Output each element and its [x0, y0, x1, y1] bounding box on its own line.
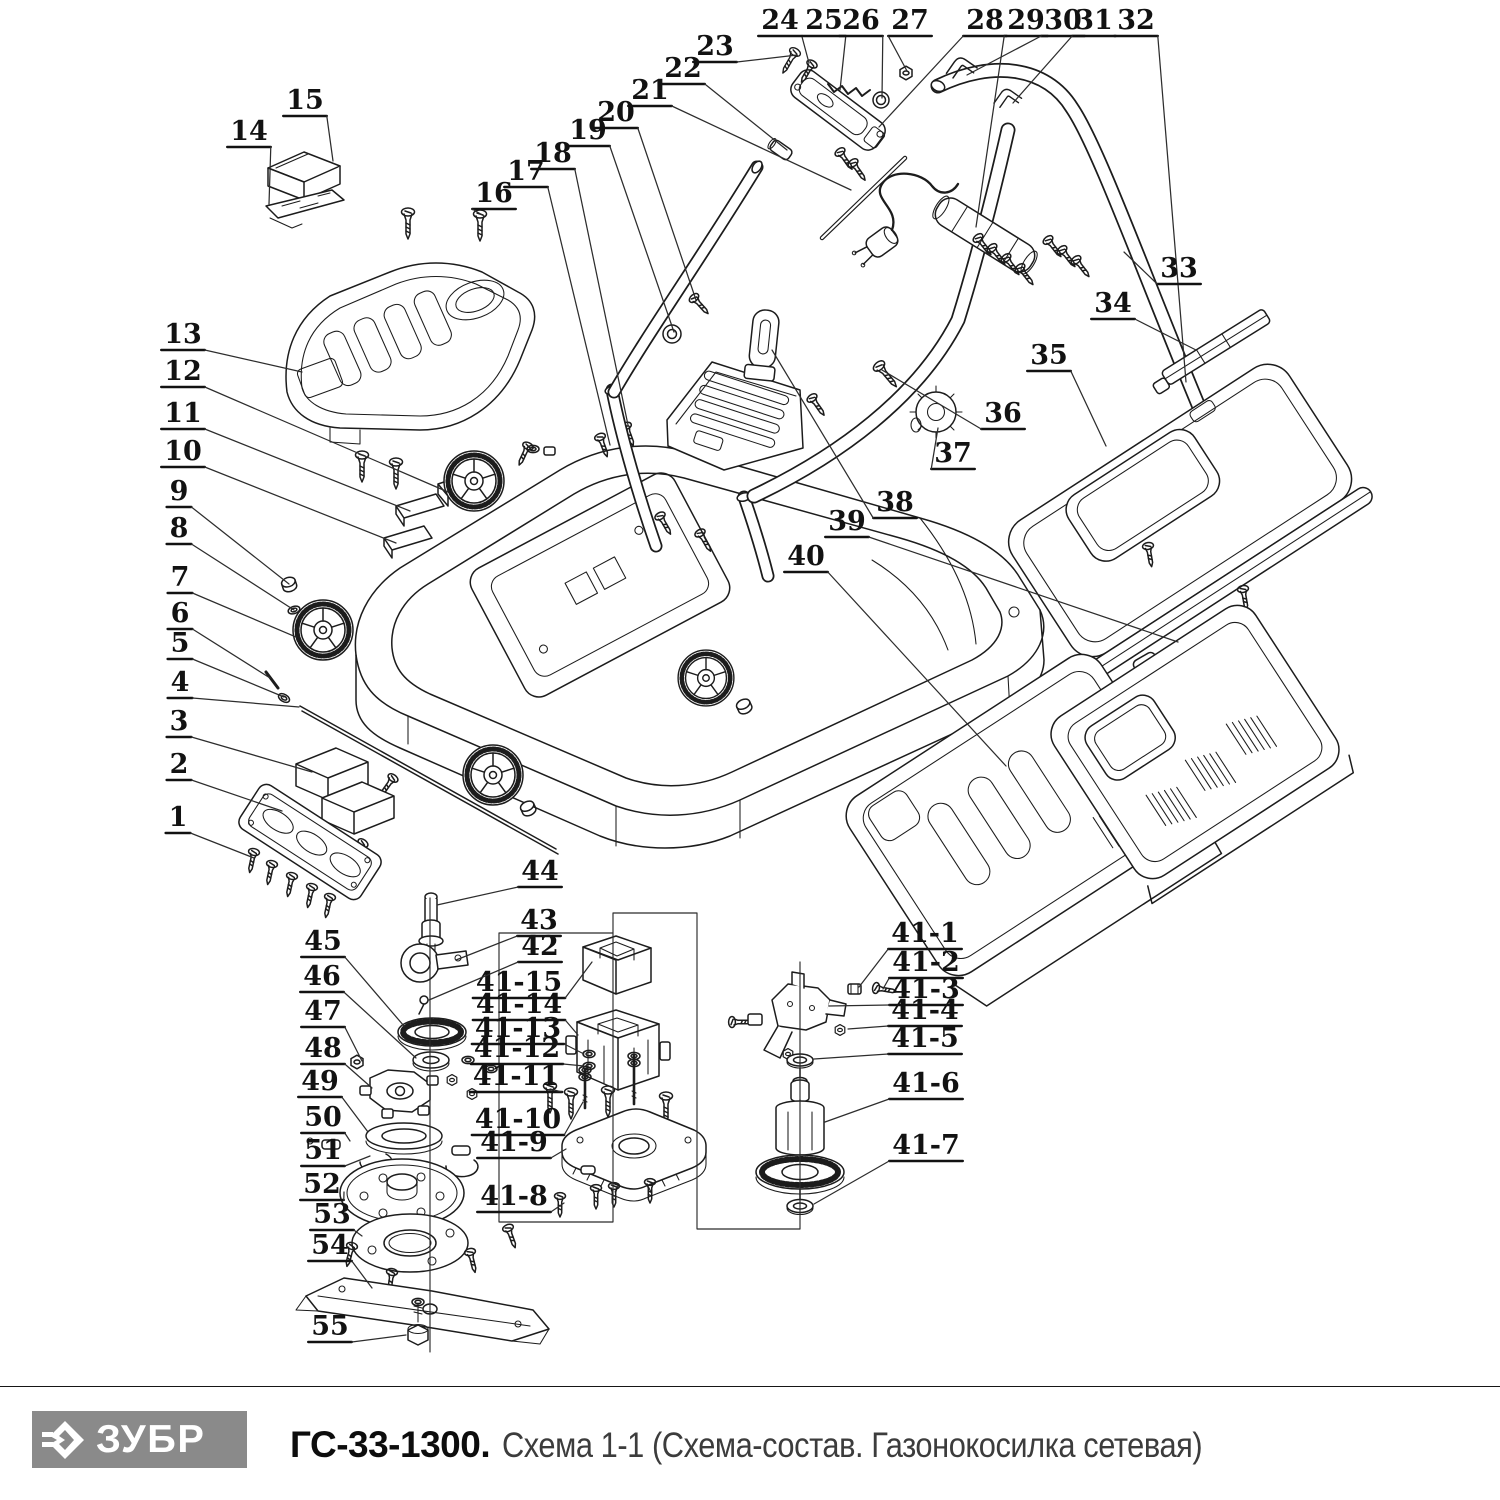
- part-label-41-10: 41-10: [475, 1104, 561, 1135]
- motor-rotor-parts: [729, 972, 898, 1215]
- leader-line-11: [205, 429, 410, 511]
- leader-line-8: [191, 544, 294, 610]
- part-label-49: 49: [301, 1066, 339, 1097]
- part-label-55: 55: [311, 1311, 349, 1342]
- schema-subtitle: Схема 1-1 (Схема-состав. Газонокосилка с…: [502, 1426, 1202, 1466]
- part-label-8: 8: [170, 513, 189, 544]
- part-label-37: 37: [934, 438, 972, 469]
- part-label-44: 44: [521, 856, 559, 887]
- part-label-13: 13: [164, 319, 202, 350]
- part-label-26: 26: [842, 5, 880, 36]
- part-label-50: 50: [304, 1102, 342, 1133]
- part-label-27: 27: [891, 5, 929, 36]
- part-label-45: 45: [304, 926, 342, 957]
- part-label-29: 29: [1007, 5, 1045, 36]
- part-label-25: 25: [805, 5, 843, 36]
- leader-line-3: [191, 737, 312, 772]
- part-label-41-11: 41-11: [473, 1061, 559, 1092]
- part-label-38: 38: [876, 487, 914, 518]
- part-label-41-6: 41-6: [892, 1068, 960, 1099]
- cover-box-14-15: [266, 152, 344, 228]
- part-label-21: 21: [631, 75, 669, 106]
- part-label-2: 2: [170, 749, 189, 780]
- part-label-40: 40: [787, 541, 825, 572]
- leader-line-6: [192, 629, 270, 678]
- part-label-3: 3: [170, 706, 189, 737]
- leader-line-55: [352, 1335, 406, 1342]
- part-label-51: 51: [304, 1135, 342, 1166]
- part-label-35: 35: [1030, 340, 1068, 371]
- brand-logo: ЗУБР: [32, 1411, 247, 1468]
- leader-line-15: [327, 116, 333, 161]
- leader-line-1: [190, 833, 254, 858]
- part-label-5: 5: [171, 628, 190, 659]
- part-label-41-4: 41-4: [891, 995, 959, 1026]
- brand-logo-text: ЗУБР: [96, 1418, 205, 1462]
- part-label-34: 34: [1094, 288, 1132, 319]
- leader-line-41-14: [565, 1020, 578, 1035]
- leader-line-10: [205, 467, 396, 543]
- part-label-47: 47: [304, 996, 342, 1027]
- motor-stator-parts: [544, 936, 707, 1217]
- part-label-41-5: 41-5: [891, 1023, 959, 1054]
- leader-line-35: [1071, 371, 1106, 446]
- leader-line-19: [610, 146, 674, 332]
- part-label-31: 31: [1075, 5, 1113, 36]
- part-label-12: 12: [164, 356, 202, 387]
- leader-line-50: [345, 1133, 350, 1141]
- leader-line-7: [192, 593, 296, 637]
- part-label-18: 18: [534, 138, 572, 169]
- leader-line-18: [575, 169, 628, 425]
- part-label-10: 10: [164, 436, 202, 467]
- part-label-32: 32: [1117, 5, 1155, 36]
- part-label-41-8: 41-8: [480, 1181, 548, 1212]
- leader-line-41-6: [825, 1099, 889, 1122]
- brand-logo-icon: [42, 1417, 88, 1463]
- leader-line-41-4: [848, 1026, 888, 1029]
- part-label-11: 11: [164, 398, 202, 429]
- part-label-24: 24: [761, 5, 799, 36]
- part-label-1: 1: [169, 802, 188, 833]
- leader-line-27: [888, 36, 907, 71]
- part-label-53: 53: [313, 1199, 351, 1230]
- part-label-20: 20: [597, 97, 635, 128]
- leader-line-45: [345, 957, 404, 1026]
- part-label-36: 36: [984, 398, 1022, 429]
- leader-line-41-5: [814, 1054, 888, 1059]
- motor-top-cover: [286, 263, 535, 444]
- part-label-9: 9: [170, 476, 189, 507]
- leader-line-44: [437, 887, 518, 905]
- part-label-43: 43: [520, 905, 558, 936]
- schematic-page: 1234567891011121314151617181920212223242…: [0, 0, 1500, 1500]
- exploded-view-diagram: 1234567891011121314151617181920212223242…: [0, 0, 1500, 1500]
- part-label-41-1: 41-1: [891, 918, 959, 949]
- part-label-48: 48: [304, 1033, 342, 1064]
- leader-line-9: [191, 507, 289, 584]
- part-label-14: 14: [230, 116, 268, 147]
- leader-line-20: [638, 128, 696, 300]
- part-label-39: 39: [828, 506, 866, 537]
- part-label-28: 28: [966, 5, 1004, 36]
- leader-line-41-1: [859, 949, 888, 987]
- leader-line-17: [548, 187, 610, 445]
- part-label-15: 15: [286, 85, 324, 116]
- leader-line-47: [345, 1027, 362, 1061]
- footer-divider: [0, 1386, 1500, 1387]
- part-label-41-15: 41-15: [476, 967, 562, 998]
- part-label-23: 23: [696, 31, 734, 62]
- leader-line-43: [456, 936, 517, 960]
- part-label-33: 33: [1160, 253, 1198, 284]
- part-label-4: 4: [171, 667, 190, 698]
- model-number: ГС-33-1300.: [290, 1424, 490, 1466]
- leader-line-26: [882, 36, 883, 98]
- leader-line-24: [802, 36, 809, 63]
- part-label-46: 46: [303, 961, 341, 992]
- part-label-6: 6: [171, 598, 190, 629]
- leader-line-49: [342, 1097, 368, 1132]
- part-label-52: 52: [303, 1169, 341, 1200]
- leader-line-25: [840, 36, 846, 90]
- part-label-7: 7: [171, 562, 190, 593]
- part-label-54: 54: [311, 1230, 349, 1261]
- drawing-caption: ГС-33-1300. Схема 1-1 (Схема-состав. Газ…: [290, 1424, 1298, 1466]
- part-label-41-7: 41-7: [892, 1130, 960, 1161]
